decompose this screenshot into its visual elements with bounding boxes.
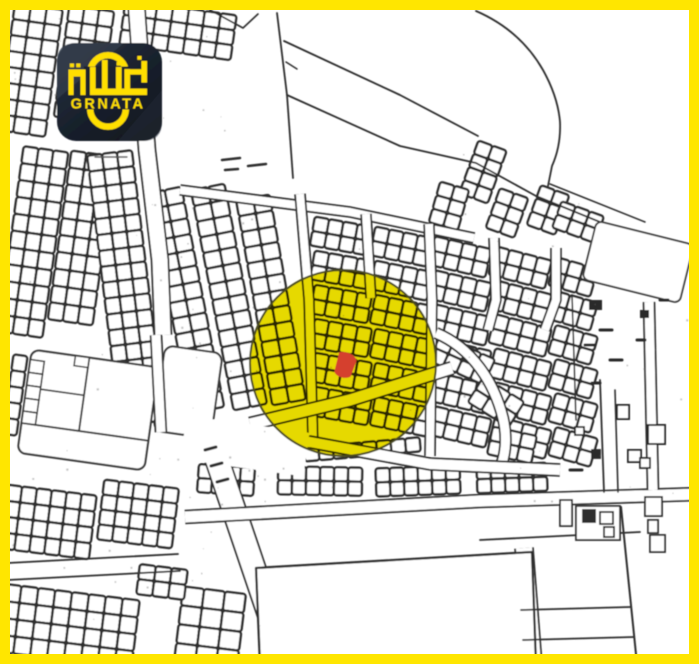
svg-text:GRNATA: GRNATA bbox=[71, 97, 146, 113]
